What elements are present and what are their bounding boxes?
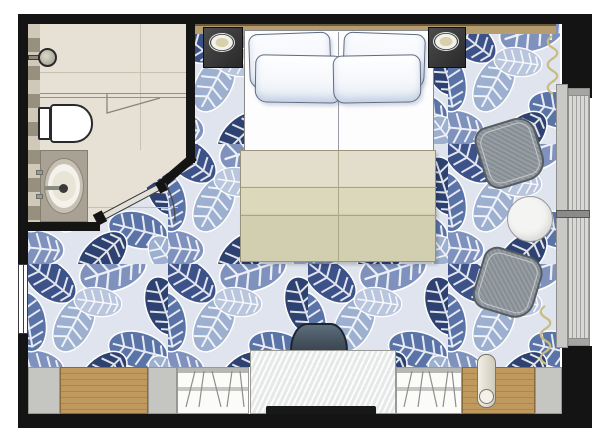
shower-glass — [40, 97, 186, 98]
door-cap-bottom — [568, 338, 590, 346]
blanket-fold — [241, 215, 437, 216]
pillow-front-left — [255, 54, 344, 104]
wardrobe-left — [177, 367, 249, 414]
wall-bottom — [18, 414, 592, 428]
wardrobe-rail — [397, 368, 461, 373]
tile-grout — [140, 24, 141, 150]
wardrobe-right — [396, 367, 462, 414]
bathroom-wall — [186, 14, 195, 163]
cabinet-gray-mid — [148, 367, 177, 414]
left-wall-opening — [18, 264, 28, 334]
armchair-cushion — [475, 250, 541, 317]
tap-handle — [36, 170, 43, 175]
bathroom-wall-bottom — [18, 222, 100, 231]
armchair-cushion — [477, 120, 543, 187]
faucet-icon — [59, 184, 68, 193]
cabinet-gray-left — [28, 367, 60, 414]
toilet-icon — [50, 104, 93, 143]
wall-top — [18, 14, 592, 24]
shower-head-icon — [38, 48, 57, 67]
wardrobe-rail — [178, 368, 248, 373]
dresser-wood — [60, 367, 148, 414]
tile-grout — [40, 72, 186, 73]
tile-grout — [88, 207, 178, 208]
tap-handle — [36, 194, 43, 199]
door-cap-top — [568, 88, 590, 96]
wardrobe-shelf — [178, 387, 248, 391]
wall-corner-bottom-right — [562, 346, 592, 428]
blanket-divider — [338, 151, 339, 263]
desk-marble — [250, 350, 396, 414]
pillow-front-right — [333, 54, 422, 104]
door-handle — [556, 210, 590, 218]
opening-frame-line — [23, 265, 24, 333]
floor-lamp-base — [479, 389, 494, 404]
desk-chair — [290, 323, 348, 353]
wardrobe-shelf — [397, 387, 461, 391]
cabinet-gray-right — [535, 367, 562, 414]
round-side-table — [507, 196, 553, 242]
blanket-fold — [241, 187, 437, 188]
lamp-icon-right — [433, 32, 459, 51]
wood-counter-right — [462, 367, 535, 414]
floor-plan — [0, 0, 600, 435]
foot-blanket — [240, 150, 436, 262]
lamp-icon-left — [209, 33, 235, 52]
shower-glass — [40, 93, 186, 94]
